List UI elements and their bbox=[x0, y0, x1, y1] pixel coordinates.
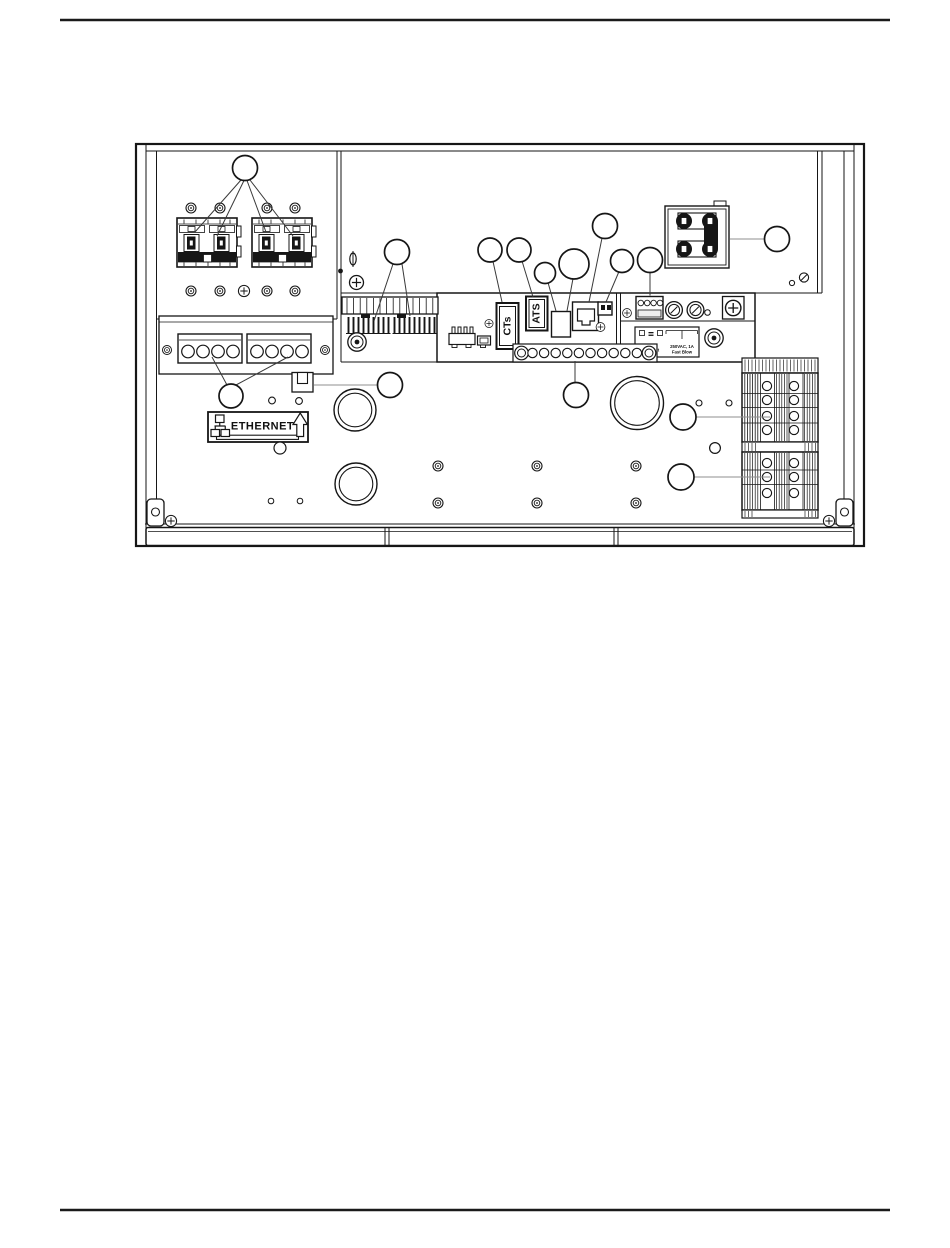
screw-icon bbox=[186, 286, 196, 296]
screw-icon bbox=[163, 346, 172, 355]
fuse-holder-icon bbox=[687, 302, 704, 319]
terminal-strip-panel bbox=[159, 316, 333, 374]
callout-hole-strip bbox=[564, 383, 589, 408]
screw-icon bbox=[433, 498, 443, 508]
screw-icon bbox=[262, 203, 272, 213]
phillips-screw-icon bbox=[485, 319, 493, 327]
callout-ats bbox=[507, 238, 531, 262]
screw-icon bbox=[532, 498, 542, 508]
screw-icon bbox=[532, 461, 542, 471]
screw-icon bbox=[290, 203, 300, 213]
phillips-screw-plate bbox=[723, 297, 745, 320]
ethernet-text: ETHERNET bbox=[231, 421, 294, 433]
panel-hole bbox=[710, 443, 721, 454]
relay-block bbox=[552, 312, 571, 338]
two-pin-connector bbox=[598, 302, 612, 315]
screw-icon bbox=[631, 498, 641, 508]
phillips-screw-icon bbox=[823, 515, 834, 526]
knockout-ring bbox=[334, 389, 376, 431]
fuse-block bbox=[665, 201, 729, 268]
grommet bbox=[348, 333, 366, 351]
phillips-screw-icon bbox=[238, 285, 249, 296]
slot-screw-icon bbox=[799, 273, 808, 282]
screw-icon bbox=[631, 461, 641, 471]
phillips-screw-icon bbox=[165, 515, 176, 526]
document-page: ETHERNET bbox=[0, 0, 950, 1248]
latch-nub bbox=[338, 269, 343, 274]
panel-hole bbox=[269, 397, 276, 404]
phillips-screw-icon bbox=[623, 309, 632, 318]
screw-icon bbox=[433, 461, 443, 471]
callout-rj45 bbox=[593, 214, 618, 239]
fuse-holder-icon bbox=[666, 302, 683, 319]
panel-hole bbox=[789, 280, 794, 285]
screw-icon bbox=[705, 310, 711, 316]
circuit-breaker-right bbox=[252, 218, 316, 267]
knockout-tab bbox=[292, 373, 313, 393]
terminal-strip-right bbox=[247, 334, 311, 363]
terminal-block-lower bbox=[742, 452, 818, 510]
callout-terminal-strips bbox=[219, 384, 243, 408]
knockout-ring-large bbox=[611, 377, 664, 430]
cts-connector: CTs bbox=[497, 303, 519, 349]
callout-terminal-block-lower bbox=[668, 464, 694, 490]
cts-label: CTs bbox=[502, 316, 514, 335]
rj45-jack bbox=[573, 302, 599, 331]
wiring-compartment-figure: ETHERNET bbox=[0, 0, 950, 1248]
screw-terminal-block bbox=[636, 297, 663, 320]
callout-relay-left bbox=[535, 263, 556, 284]
phillips-screw-icon bbox=[350, 276, 364, 290]
callout-breaker-handles bbox=[233, 156, 258, 181]
fuse-rating-label: 250VAC, 1A bbox=[670, 344, 694, 349]
terminal-strip-left bbox=[178, 334, 242, 363]
panel-hole bbox=[297, 498, 303, 504]
callout-knockout-tab bbox=[378, 373, 403, 398]
callout-cts bbox=[478, 238, 502, 262]
round-hole-strip bbox=[513, 344, 657, 362]
callout-relay-right bbox=[559, 249, 589, 279]
screw-icon bbox=[262, 286, 272, 296]
fuse-rating-label2: Fast Blow bbox=[672, 350, 693, 355]
knockout-ring bbox=[335, 463, 377, 505]
callout-heatsink-connector bbox=[385, 240, 410, 265]
screw-icon bbox=[215, 286, 225, 296]
circuit-breaker-left bbox=[177, 218, 241, 267]
screw-icon bbox=[321, 346, 330, 355]
panel-hole bbox=[696, 400, 702, 406]
callout-terminal-block-upper bbox=[670, 404, 696, 430]
grommet bbox=[705, 329, 723, 347]
panel-hole bbox=[274, 442, 286, 454]
phillips-screw-icon bbox=[596, 323, 605, 332]
terminal-block-upper bbox=[742, 373, 818, 442]
panel-hole bbox=[726, 400, 732, 406]
callout-fuse-block bbox=[765, 227, 790, 252]
callout-screw-terminal bbox=[638, 248, 663, 273]
screw-icon bbox=[290, 286, 300, 296]
ats-connector: ATS bbox=[526, 297, 548, 331]
ats-label: ATS bbox=[531, 303, 543, 323]
callout-two-pin bbox=[611, 250, 634, 273]
panel-hole bbox=[296, 398, 303, 405]
screw-icon bbox=[186, 203, 196, 213]
panel-hole bbox=[268, 498, 274, 504]
output-terminal-blocks bbox=[742, 358, 818, 518]
